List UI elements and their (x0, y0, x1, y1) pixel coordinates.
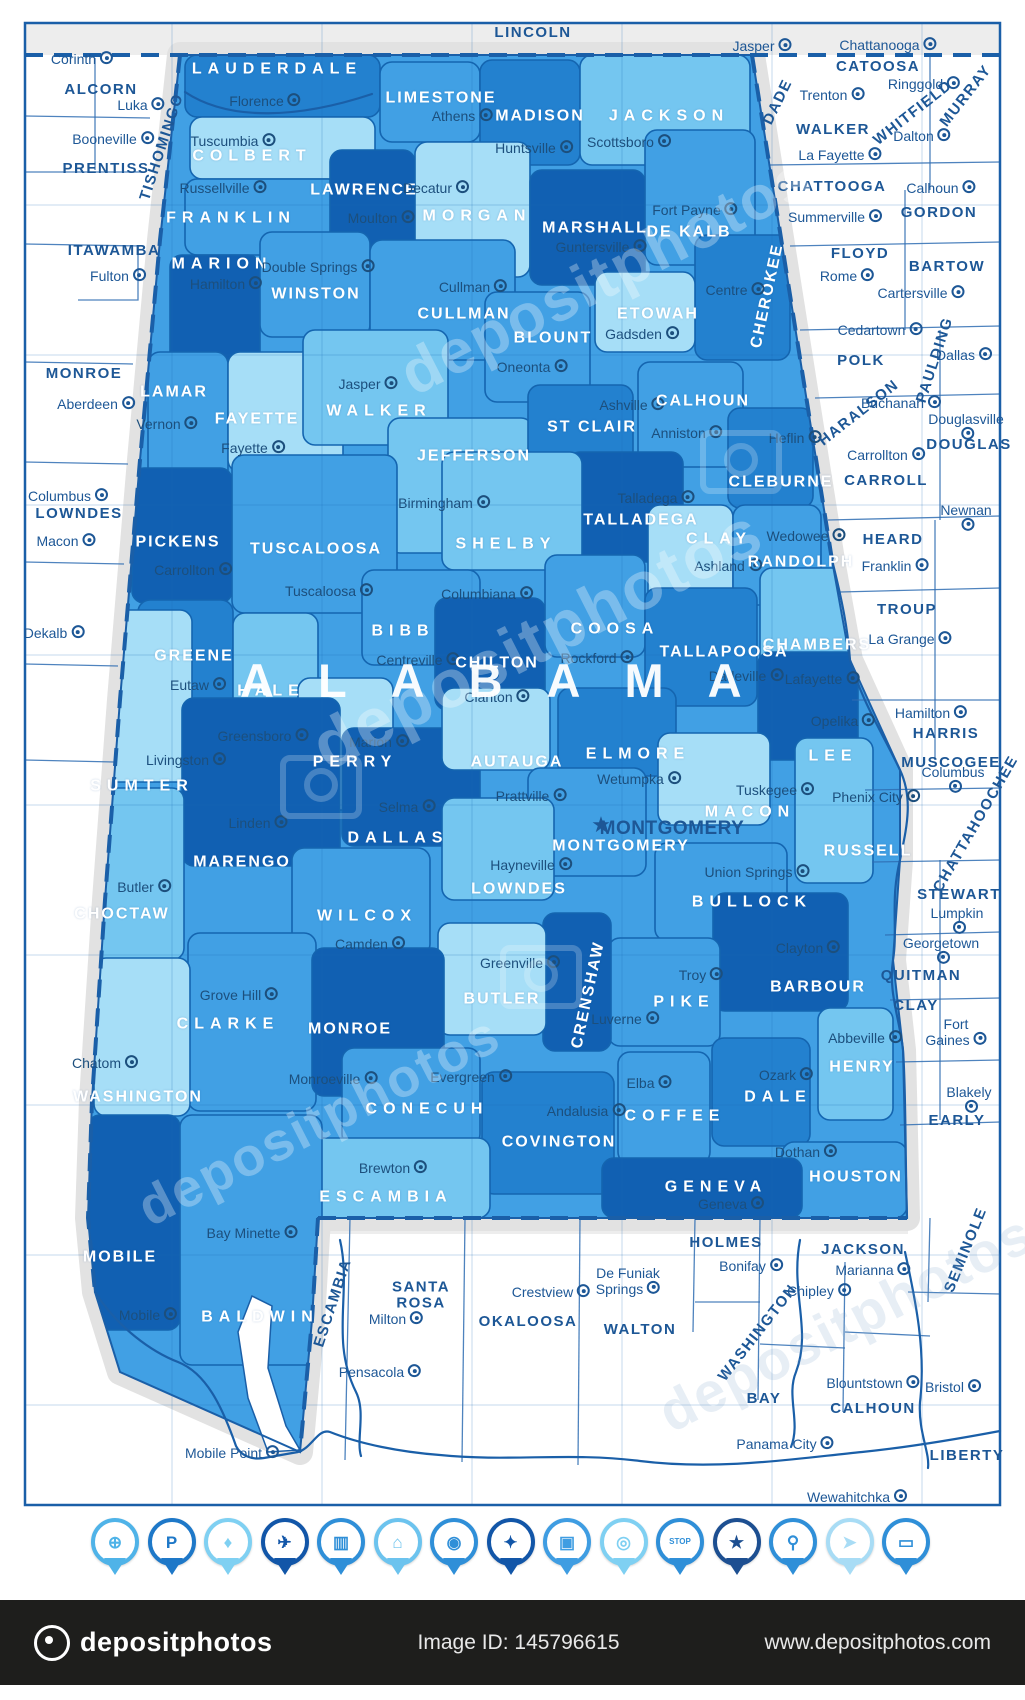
county-shape-dale (712, 1038, 810, 1146)
county-shape-shelby (442, 452, 582, 570)
map-canvas (0, 0, 1025, 1700)
county-shape-coosa (545, 555, 645, 657)
alabama-county-map-stock-image: LAUDERDALEFlorenceCOLBERTTuscumbiaFRANKL… (0, 0, 1025, 1700)
county-shape-russell (795, 738, 873, 883)
county-shape-cherokee (695, 235, 790, 360)
county-shape-lamar (148, 352, 228, 482)
county-shape-etowah (595, 272, 695, 352)
watermark-bar: depositphotos Image ID: 145796615 www.de… (0, 1600, 1025, 1685)
image-id-text: Image ID: 145796615 (418, 1631, 620, 1655)
county-shape-marengo (182, 698, 340, 866)
county-shape-butler (438, 923, 546, 1035)
county-shape-macon (658, 733, 770, 825)
county-shape-limestone (380, 62, 480, 142)
county-shape-lauderdale (185, 55, 380, 117)
depositphotos-url: www.depositphotos.com (765, 1631, 991, 1655)
county-shape-henry (818, 1008, 893, 1120)
county-shape-covington (482, 1072, 614, 1194)
county-shape-mobile (88, 1115, 180, 1330)
county-shape-barbour (713, 893, 848, 1011)
depositphotos-logo-text: depositphotos (80, 1627, 272, 1658)
county-shape-winston (260, 232, 370, 337)
county-shape-coffee (618, 1052, 710, 1164)
depositphotos-logo-icon (34, 1625, 70, 1661)
county-shape-clarke (188, 933, 316, 1111)
county-shape-pike (608, 938, 720, 1046)
county-shape-escambia (312, 1138, 490, 1218)
depositphotos-logo: depositphotos (34, 1625, 272, 1661)
state-title-alabama: ALABAMA (240, 653, 786, 708)
county-shape-cleburne (728, 408, 813, 508)
county-shape-crenshaw (543, 913, 611, 1051)
county-shape-conecuh (342, 1048, 480, 1146)
county-shape-lowndes (442, 798, 554, 900)
county-shape-washington (94, 958, 190, 1116)
county-shape-pickens (132, 468, 232, 603)
county-shape-marshall (530, 170, 645, 285)
